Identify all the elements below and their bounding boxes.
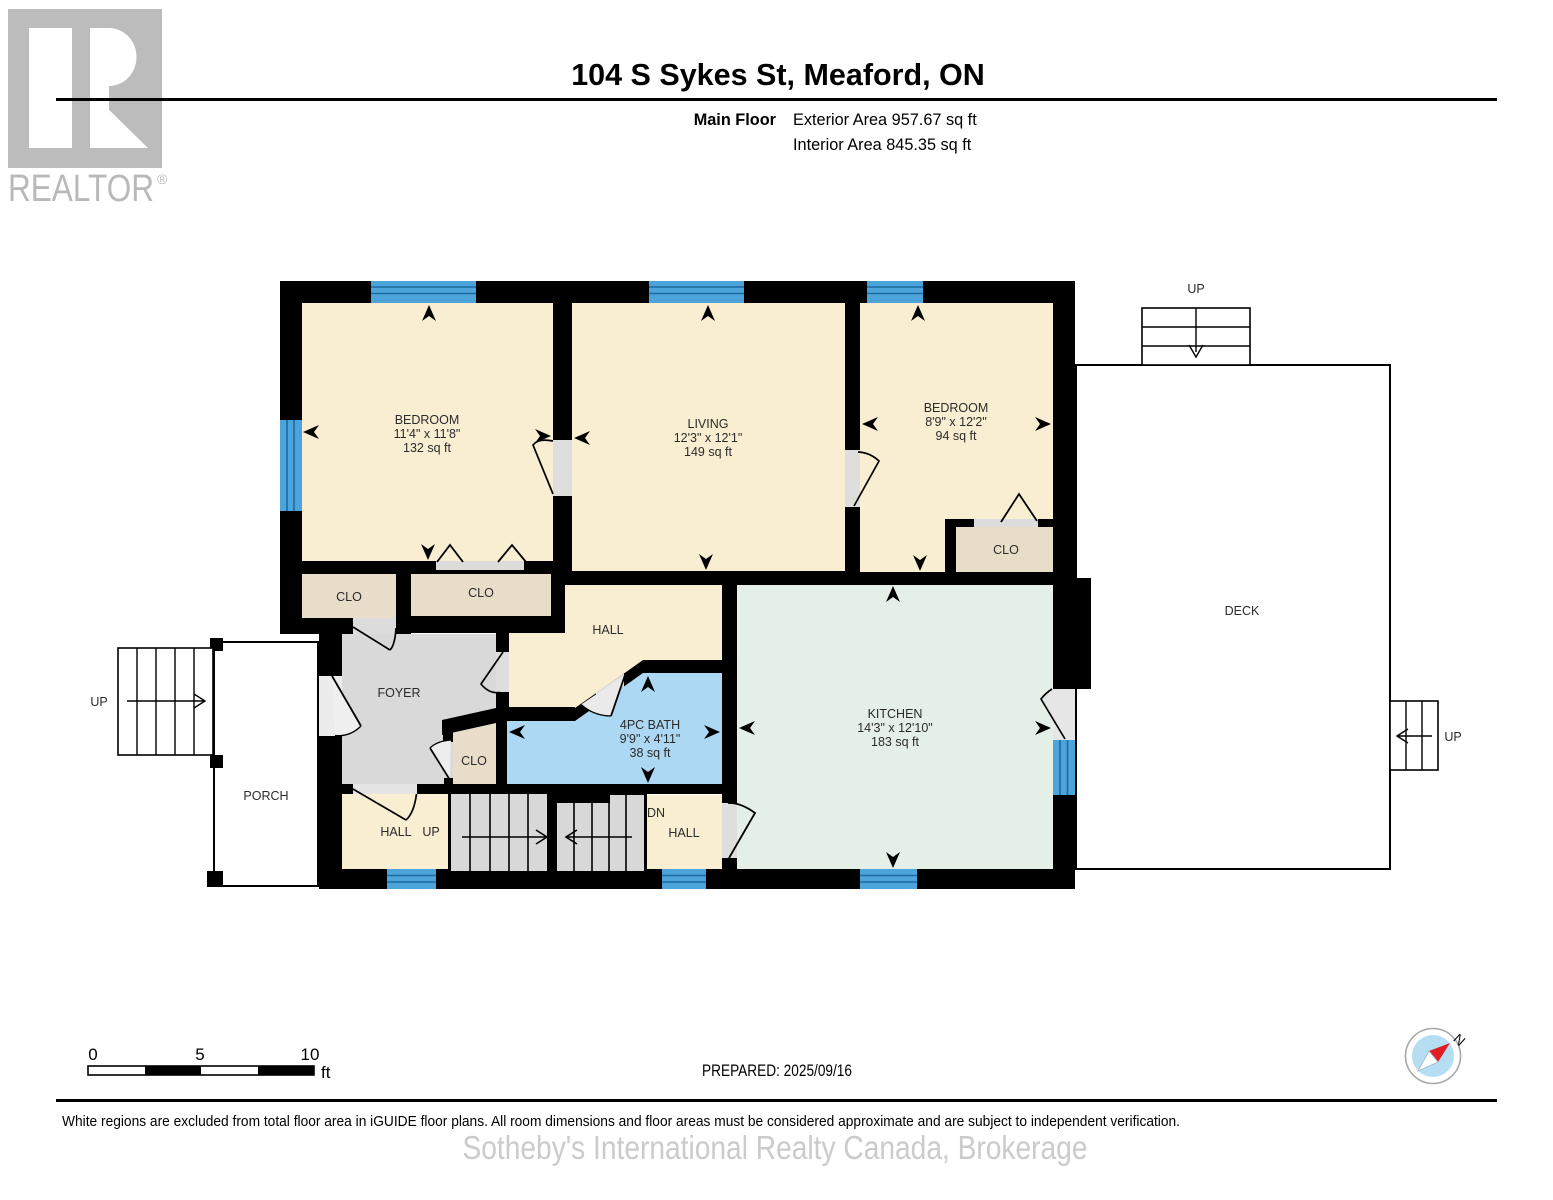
svg-text:ft: ft: [321, 1063, 331, 1082]
svg-text:8'9" x 12'2": 8'9" x 12'2": [925, 415, 987, 429]
svg-text:UP: UP: [422, 825, 439, 839]
svg-text:PREPARED: 2025/09/16: PREPARED: 2025/09/16: [702, 1062, 852, 1080]
svg-text:BEDROOM: BEDROOM: [924, 401, 989, 415]
svg-text:104 S Sykes St, Meaford, ON: 104 S Sykes St, Meaford, ON: [571, 58, 985, 92]
svg-text:FOYER: FOYER: [377, 686, 420, 700]
svg-text:94 sq ft: 94 sq ft: [936, 429, 978, 443]
svg-text:Interior Area 845.35 sq ft: Interior Area 845.35 sq ft: [793, 136, 972, 154]
svg-text:Sotheby's International Realty: Sotheby's International Realty Canada, B…: [463, 1129, 1088, 1166]
svg-text:White regions are excluded fro: White regions are excluded from total fl…: [62, 1114, 1180, 1130]
svg-text:CLO: CLO: [461, 754, 487, 768]
svg-text:Main Floor: Main Floor: [694, 111, 777, 129]
svg-text:HALL: HALL: [380, 825, 411, 839]
svg-text:132 sq ft: 132 sq ft: [403, 441, 451, 455]
svg-text:10: 10: [301, 1045, 320, 1064]
svg-text:UP: UP: [1187, 282, 1204, 296]
svg-text:HALL: HALL: [592, 623, 623, 637]
svg-text:LIVING: LIVING: [688, 417, 729, 431]
svg-text:DECK: DECK: [1225, 604, 1260, 618]
svg-text:CLO: CLO: [336, 590, 362, 604]
svg-text:11'4" x 11'8": 11'4" x 11'8": [394, 427, 461, 441]
svg-text:KITCHEN: KITCHEN: [868, 707, 923, 721]
svg-text:HALL: HALL: [668, 826, 699, 840]
svg-text:14'3" x 12'10": 14'3" x 12'10": [857, 721, 933, 735]
svg-text:UP: UP: [90, 695, 107, 709]
svg-text:0: 0: [88, 1045, 97, 1064]
svg-text:PORCH: PORCH: [243, 789, 288, 803]
svg-text:®: ®: [157, 171, 168, 187]
svg-text:183 sq ft: 183 sq ft: [871, 735, 919, 749]
svg-text:12'3" x 12'1": 12'3" x 12'1": [674, 431, 743, 445]
svg-text:REALTOR: REALTOR: [8, 168, 154, 210]
svg-text:UP: UP: [1444, 730, 1461, 744]
svg-text:BEDROOM: BEDROOM: [395, 413, 460, 427]
svg-text:CLO: CLO: [468, 586, 494, 600]
svg-text:Exterior Area 957.67 sq ft: Exterior Area 957.67 sq ft: [793, 111, 977, 129]
svg-text:149 sq ft: 149 sq ft: [684, 445, 732, 459]
svg-text:4PC BATH: 4PC BATH: [620, 718, 680, 732]
svg-text:CLO: CLO: [993, 543, 1019, 557]
svg-text:5: 5: [195, 1045, 204, 1064]
svg-text:DN: DN: [647, 806, 665, 820]
svg-text:9'9" x 4'11": 9'9" x 4'11": [620, 732, 681, 746]
svg-text:38 sq ft: 38 sq ft: [630, 746, 672, 760]
